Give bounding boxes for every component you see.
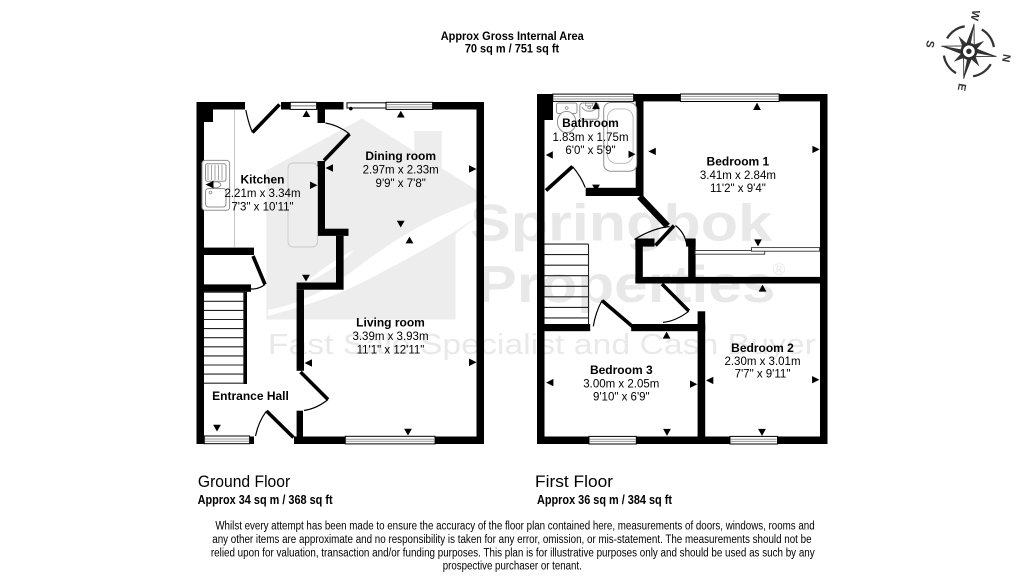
svg-text:Springbok: Springbok: [470, 195, 772, 253]
svg-text:relied upon for valuation, tra: relied upon for valuation, transaction a…: [211, 547, 815, 559]
svg-text:3.39m x 3.93m: 3.39m x 3.93m: [352, 331, 428, 343]
svg-text:11'2" x 9'4": 11'2" x 9'4": [710, 183, 766, 195]
svg-text:Approx 34 sq m / 368 sq ft: Approx 34 sq m / 368 sq ft: [198, 493, 334, 507]
svg-text:3.00m x 2.05m: 3.00m x 2.05m: [583, 379, 659, 391]
svg-text:2.30m x 3.01m: 2.30m x 3.01m: [724, 356, 800, 368]
svg-text:9'9" x 7'8": 9'9" x 7'8": [376, 178, 426, 190]
svg-text:Ground Floor: Ground Floor: [198, 473, 291, 491]
svg-text:Entrance Hall: Entrance Hall: [212, 389, 289, 403]
svg-text:Whilst every attempt has been: Whilst every attempt has been made to en…: [215, 521, 814, 533]
svg-text:Bedroom 2: Bedroom 2: [731, 341, 794, 355]
svg-text:Approx 36 sq m / 384 sq ft: Approx 36 sq m / 384 sq ft: [537, 493, 673, 507]
svg-text:Properties: Properties: [477, 256, 776, 314]
svg-text:prospective purchaser or tenan: prospective purchaser or tenant.: [443, 561, 582, 573]
svg-text:Bedroom 3: Bedroom 3: [590, 363, 653, 377]
svg-text:11'1" x 12'11": 11'1" x 12'11": [357, 345, 425, 357]
svg-text:any other items are approximat: any other items are approximate and no r…: [212, 534, 811, 546]
svg-text:1.83m x 1.75m: 1.83m x 1.75m: [552, 132, 628, 144]
svg-text:7'3" x 10'11": 7'3" x 10'11": [231, 202, 293, 214]
svg-text:2.97m x 2.33m: 2.97m x 2.33m: [363, 164, 439, 176]
svg-text:Kitchen: Kitchen: [240, 173, 284, 187]
svg-text:First Floor: First Floor: [535, 473, 614, 491]
svg-text:Living room: Living room: [356, 316, 425, 330]
svg-text:9'10" x 6'9": 9'10" x 6'9": [593, 392, 650, 404]
svg-text:Dining room: Dining room: [365, 149, 436, 163]
svg-text:®: ®: [773, 260, 786, 279]
svg-text:70 sq m / 751 sq ft: 70 sq m / 751 sq ft: [465, 42, 559, 56]
svg-text:Bathroom: Bathroom: [562, 116, 619, 130]
svg-text:6'0" x 5'9": 6'0" x 5'9": [565, 145, 615, 157]
svg-text:3.41m x 2.84m: 3.41m x 2.84m: [700, 170, 776, 182]
svg-text:2.21m x 3.34m: 2.21m x 3.34m: [224, 188, 300, 200]
svg-text:Bedroom 1: Bedroom 1: [707, 155, 770, 169]
svg-text:7'7" x 9'11": 7'7" x 9'11": [735, 369, 791, 381]
